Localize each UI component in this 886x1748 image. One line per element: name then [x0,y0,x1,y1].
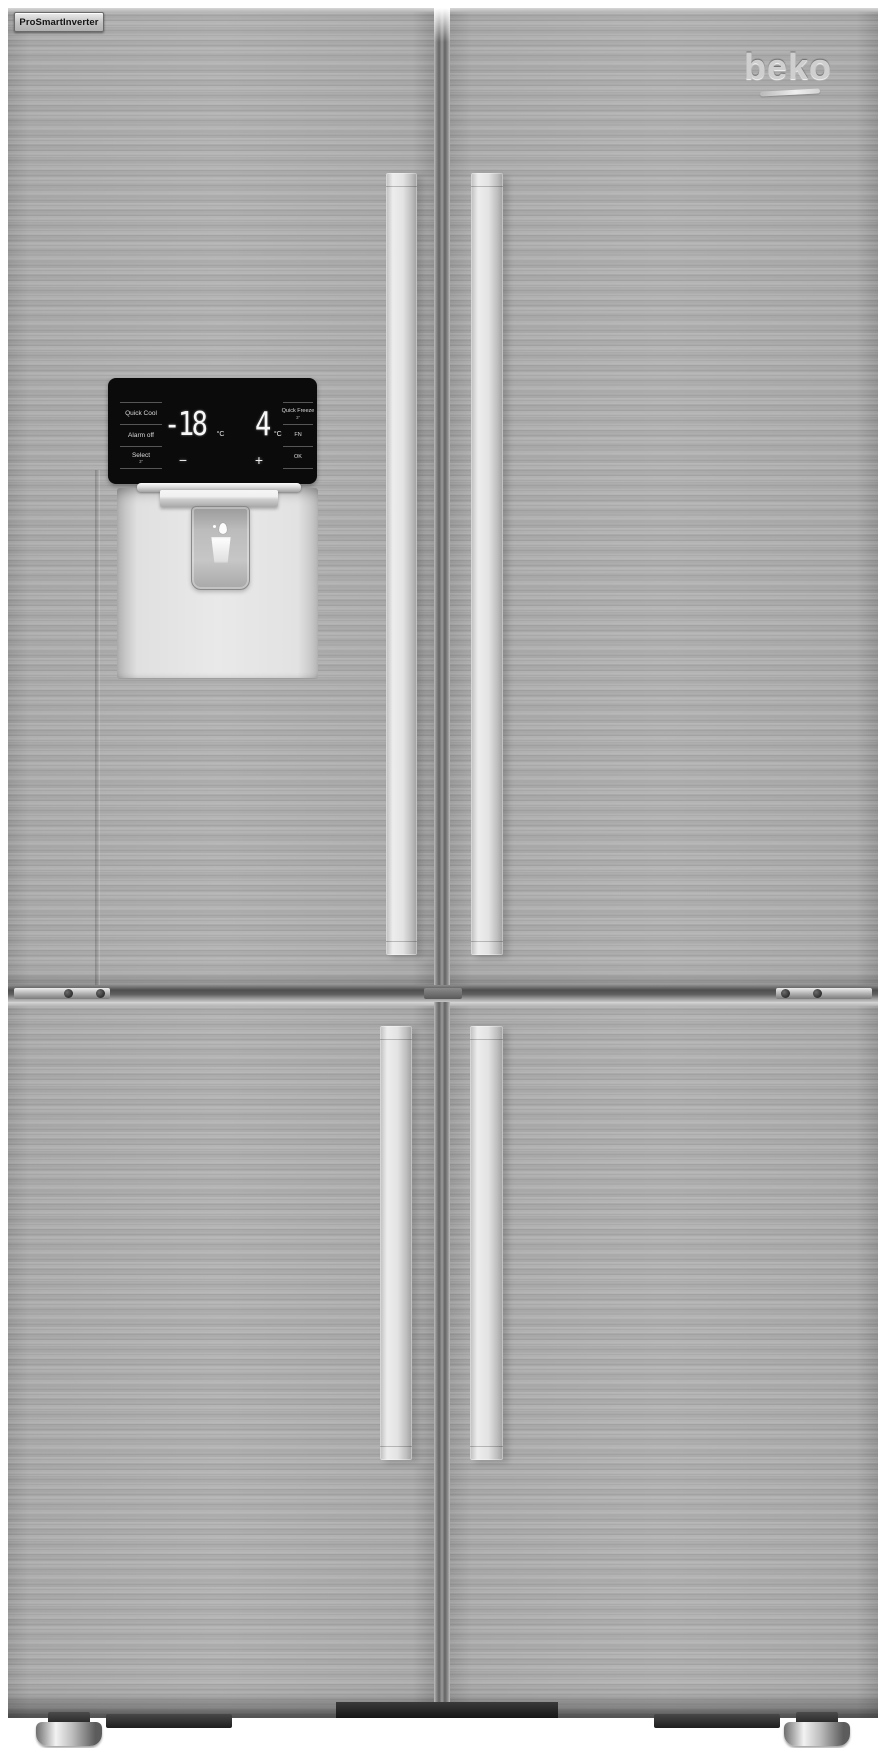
water-droplet-icon [219,523,227,534]
alarm-off-button[interactable]: Alarm off [120,424,162,446]
base-bracket-right [654,1714,780,1728]
alarm-off-label: Alarm off [128,432,154,439]
base-bracket-left [106,1714,232,1728]
hinge-screw-icon [96,989,105,998]
select-label: Select [132,452,150,459]
handle-top-left-door[interactable] [386,173,417,955]
ok-label: OK [294,454,302,461]
quick-cool-button[interactable]: Quick Cool [120,402,162,424]
door-top-right [450,8,878,985]
fn-label: FN [294,432,301,439]
hinge-center [424,988,462,999]
fridge-temp-display: 4 °C [255,404,282,440]
hinge-right [776,988,872,999]
handle-bottom-right-door[interactable] [470,1026,503,1460]
panel-left-buttons: Quick Cool Alarm off Select 3″ [120,402,162,469]
quick-freeze-button[interactable]: Quick Freeze 3″ [283,402,313,424]
adjustable-foot-right [784,1722,850,1746]
dispenser-paddle[interactable] [191,506,250,590]
water-glass-icon [209,523,233,571]
select-sublabel: 3″ [139,459,143,464]
base-plinth [336,1702,558,1718]
panel-right-buttons: Quick Freeze 3″ FN OK [283,402,313,469]
door-bottom-right [450,1002,878,1718]
freezer-temp-value: -18 [164,407,205,440]
beko-logo: beko [744,46,854,100]
glass-shape [210,537,232,563]
product-photo-beko-fridge: ProSmartInverter beko Quick Cool Alarm o… [0,0,886,1748]
handle-top-right-door[interactable] [471,173,503,955]
sparkle-dot [213,525,216,528]
select-button[interactable]: Select 3″ [120,446,162,469]
temp-increase-button[interactable]: + [248,452,270,470]
freezer-temp-unit: °C [217,431,225,438]
fridge-temp-value: 4 [255,407,269,440]
door-gap-vertical-bottom [434,1002,450,1718]
dispenser-actuator-housing [160,490,278,507]
control-panel: Quick Cool Alarm off Select 3″ Quick Fre… [108,378,317,484]
quick-cool-label: Quick Cool [125,410,157,417]
hinge-screw-icon [64,989,73,998]
fridge-temp-unit: °C [274,431,282,438]
hinge-screw-icon [781,989,790,998]
quick-freeze-label: Quick Freeze [282,408,315,415]
badge-label: ProSmartInverter [19,17,98,28]
beko-logo-text: beko [744,46,854,88]
door-groove [95,470,100,985]
adjustable-foot-left [36,1722,102,1746]
handle-bottom-left-door[interactable] [380,1026,412,1460]
fn-button[interactable]: FN [283,424,313,446]
hinge-screw-icon [813,989,822,998]
beko-logo-underline [760,88,820,96]
quick-freeze-sublabel: 3″ [296,415,300,420]
door-bottom-left [8,1002,434,1718]
freezer-temp-display: -18 °C [164,404,224,440]
temp-decrease-button[interactable]: − [172,452,194,470]
ok-button[interactable]: OK [283,446,313,469]
gap-top-fade [434,8,450,42]
prosmart-inverter-badge: ProSmartInverter [14,12,104,32]
door-gap-vertical-top [434,8,450,985]
